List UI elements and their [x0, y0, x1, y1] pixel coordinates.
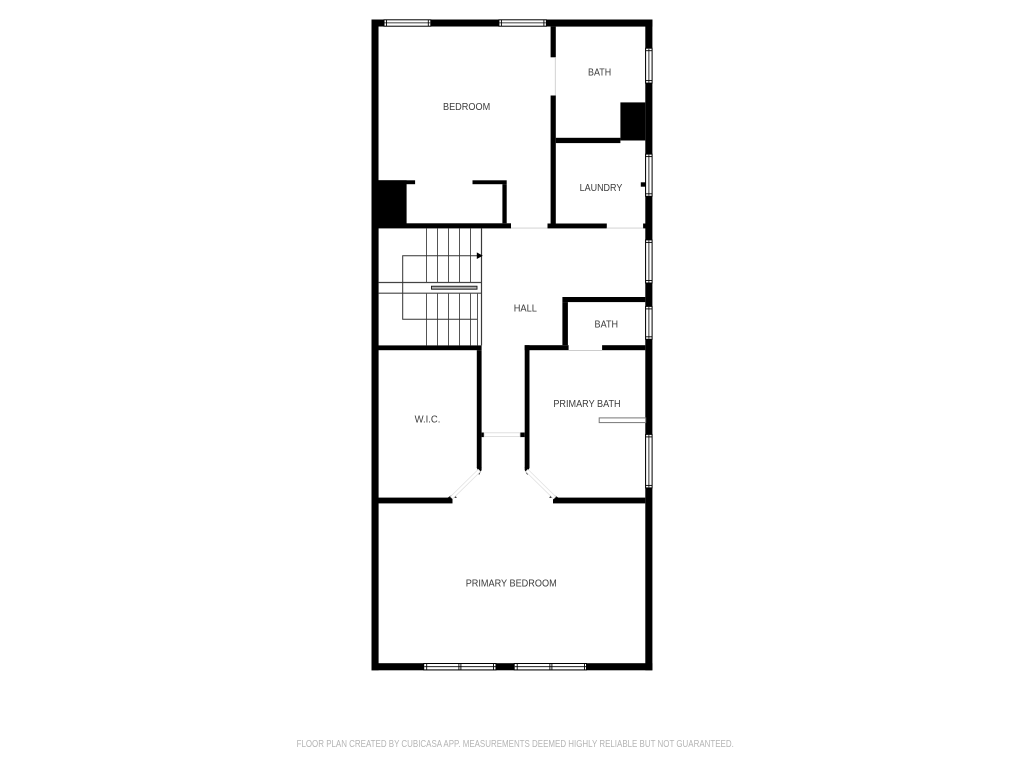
svg-text:W.I.C.: W.I.C.	[415, 414, 441, 425]
svg-text:BATH: BATH	[588, 67, 611, 78]
svg-text:PRIMARY BEDROOM: PRIMARY BEDROOM	[466, 578, 557, 589]
svg-text:BATH: BATH	[595, 320, 619, 331]
svg-text:HALL: HALL	[514, 304, 537, 315]
svg-text:LAUNDRY: LAUNDRY	[580, 183, 623, 194]
svg-text:PRIMARY BATH: PRIMARY BATH	[553, 399, 620, 410]
svg-text:FLOOR PLAN CREATED BY CUBICASA: FLOOR PLAN CREATED BY CUBICASA APP. MEAS…	[297, 739, 734, 750]
svg-text:BEDROOM: BEDROOM	[443, 102, 490, 113]
